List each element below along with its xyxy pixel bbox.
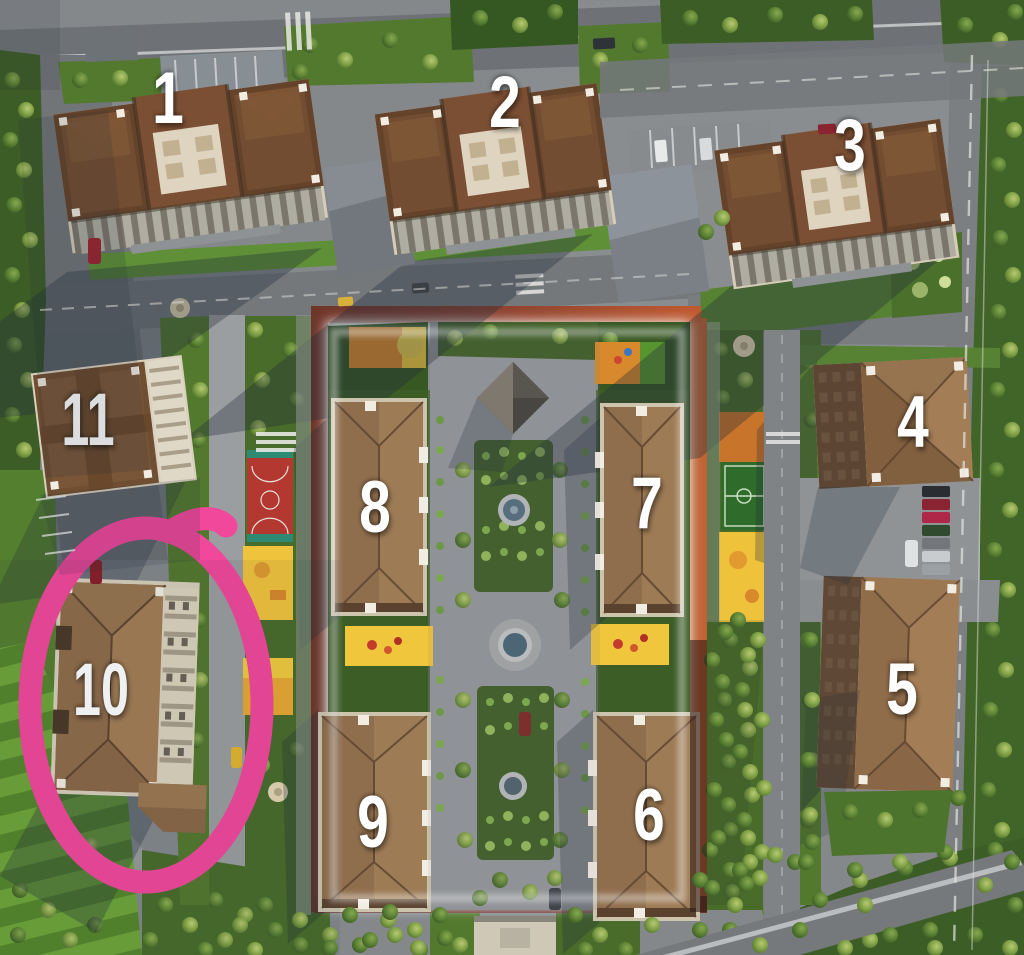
svg-text:8: 8	[359, 466, 391, 547]
svg-text:5: 5	[886, 648, 918, 729]
svg-text:9: 9	[357, 781, 389, 862]
svg-text:4: 4	[897, 381, 929, 462]
svg-text:6: 6	[633, 774, 665, 855]
svg-text:1: 1	[152, 57, 184, 138]
svg-text:3: 3	[834, 104, 866, 185]
svg-text:2: 2	[489, 61, 521, 142]
svg-text:7: 7	[631, 462, 663, 543]
